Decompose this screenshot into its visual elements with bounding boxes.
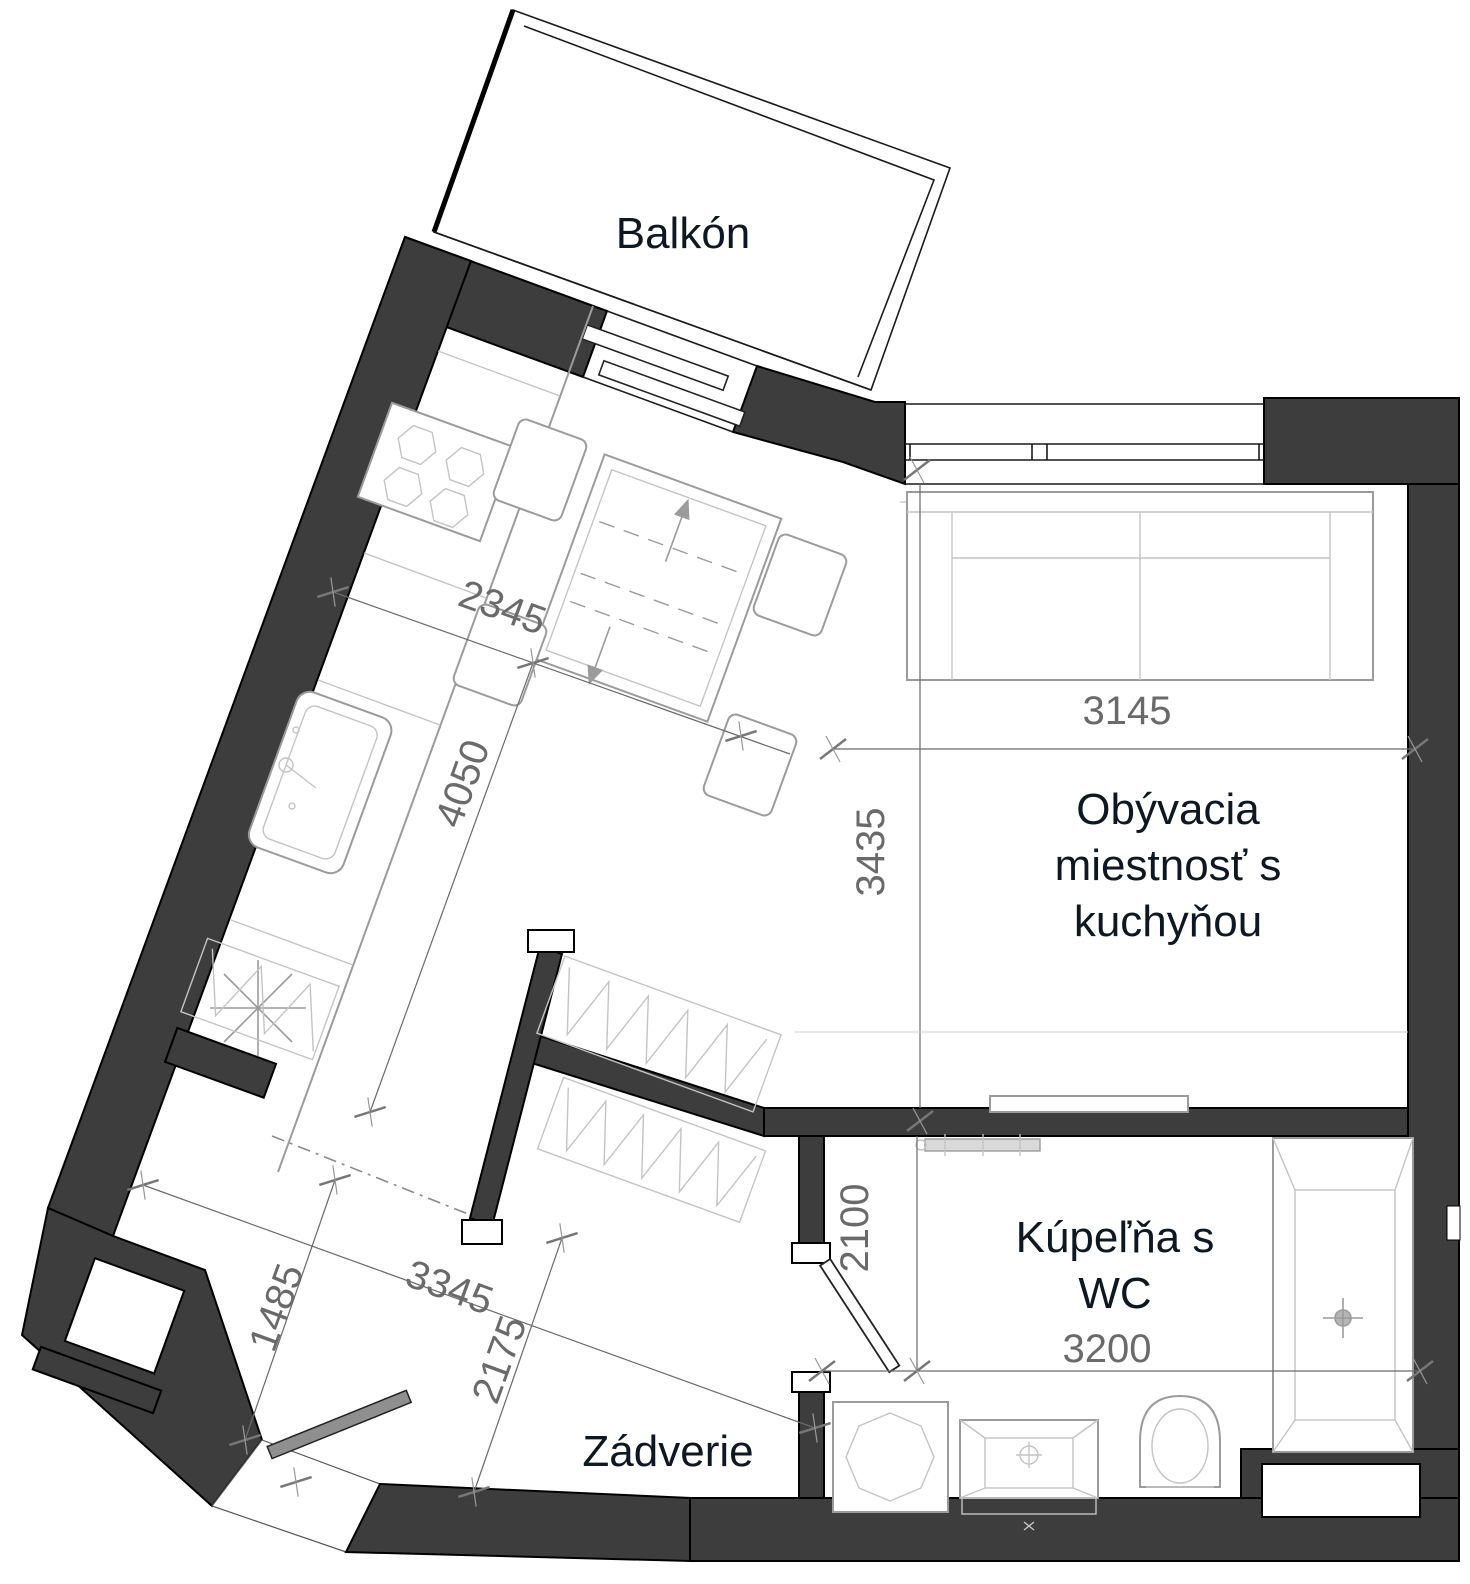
dim-living-depth: 3435 xyxy=(849,808,893,897)
wall-bottom-niche xyxy=(1262,1464,1420,1517)
dim-bath-depth: 2100 xyxy=(833,1184,877,1273)
dim-hall-niche: 1485 xyxy=(241,1258,313,1357)
appliance-asterisk-icon xyxy=(210,960,306,1056)
sofa xyxy=(907,492,1373,680)
bathroom-door-leaf xyxy=(820,1259,899,1372)
chair-1 xyxy=(491,417,588,522)
bathtub xyxy=(1273,1138,1413,1452)
dim-bath-width: 3200 xyxy=(1063,1327,1152,1371)
room-label-balcony: Balkón xyxy=(616,209,751,258)
wall-bathdoor-stub-lower xyxy=(799,1392,824,1498)
wall-bottom-diagonal xyxy=(346,1484,690,1561)
dim-hall-width: 3345 xyxy=(400,1252,499,1324)
wardrobe-partition-cap-top xyxy=(528,930,574,952)
balcony-door xyxy=(582,311,757,432)
towel-radiator xyxy=(916,1134,1040,1156)
room-label-living-2: miestnosť s xyxy=(1055,841,1282,890)
washing-machine xyxy=(833,1402,948,1512)
wall-top-chevron xyxy=(733,366,905,484)
toilet xyxy=(1140,1396,1220,1487)
tv-sideboard xyxy=(990,1096,1188,1112)
floor-plan: Balkón Obývacia miestnosť s kuchyňou Kúp… xyxy=(0,0,1470,1584)
wardrobe-partition-cap-bottom xyxy=(462,1220,502,1244)
vanity-sink xyxy=(960,1420,1098,1530)
dim-hall-length: 2175 xyxy=(464,1310,536,1409)
bathdoor-frame-upper xyxy=(792,1243,830,1263)
wall-right-notch xyxy=(1447,1206,1460,1240)
wall-bathdoor-stub-upper xyxy=(799,1136,824,1243)
room-label-living-3: kuchyňou xyxy=(1074,897,1262,946)
wall-kitchen-stub xyxy=(165,1028,276,1098)
room-label-bathroom-1: Kúpeľňa s xyxy=(1016,1213,1215,1262)
dim-kitchen-length: 4050 xyxy=(427,734,499,833)
floor-plan-drawing: Balkón Obývacia miestnosť s kuchyňou Kúp… xyxy=(0,0,1470,1584)
living-room-window xyxy=(900,404,1268,502)
balcony-left-edge xyxy=(434,10,513,232)
wall-right xyxy=(1408,484,1459,1561)
wall-wardrobe-partition xyxy=(470,946,562,1226)
room-label-living-1: Obývacia xyxy=(1076,785,1260,834)
entrance-door-leaf xyxy=(267,1390,411,1458)
room-label-bathroom-2: WC xyxy=(1078,1269,1151,1318)
wall-top-right xyxy=(1264,398,1459,484)
dim-living-width: 3145 xyxy=(1083,689,1172,733)
room-label-hall: Zádverie xyxy=(582,1427,753,1476)
opening-dashed-line xyxy=(272,1136,468,1214)
